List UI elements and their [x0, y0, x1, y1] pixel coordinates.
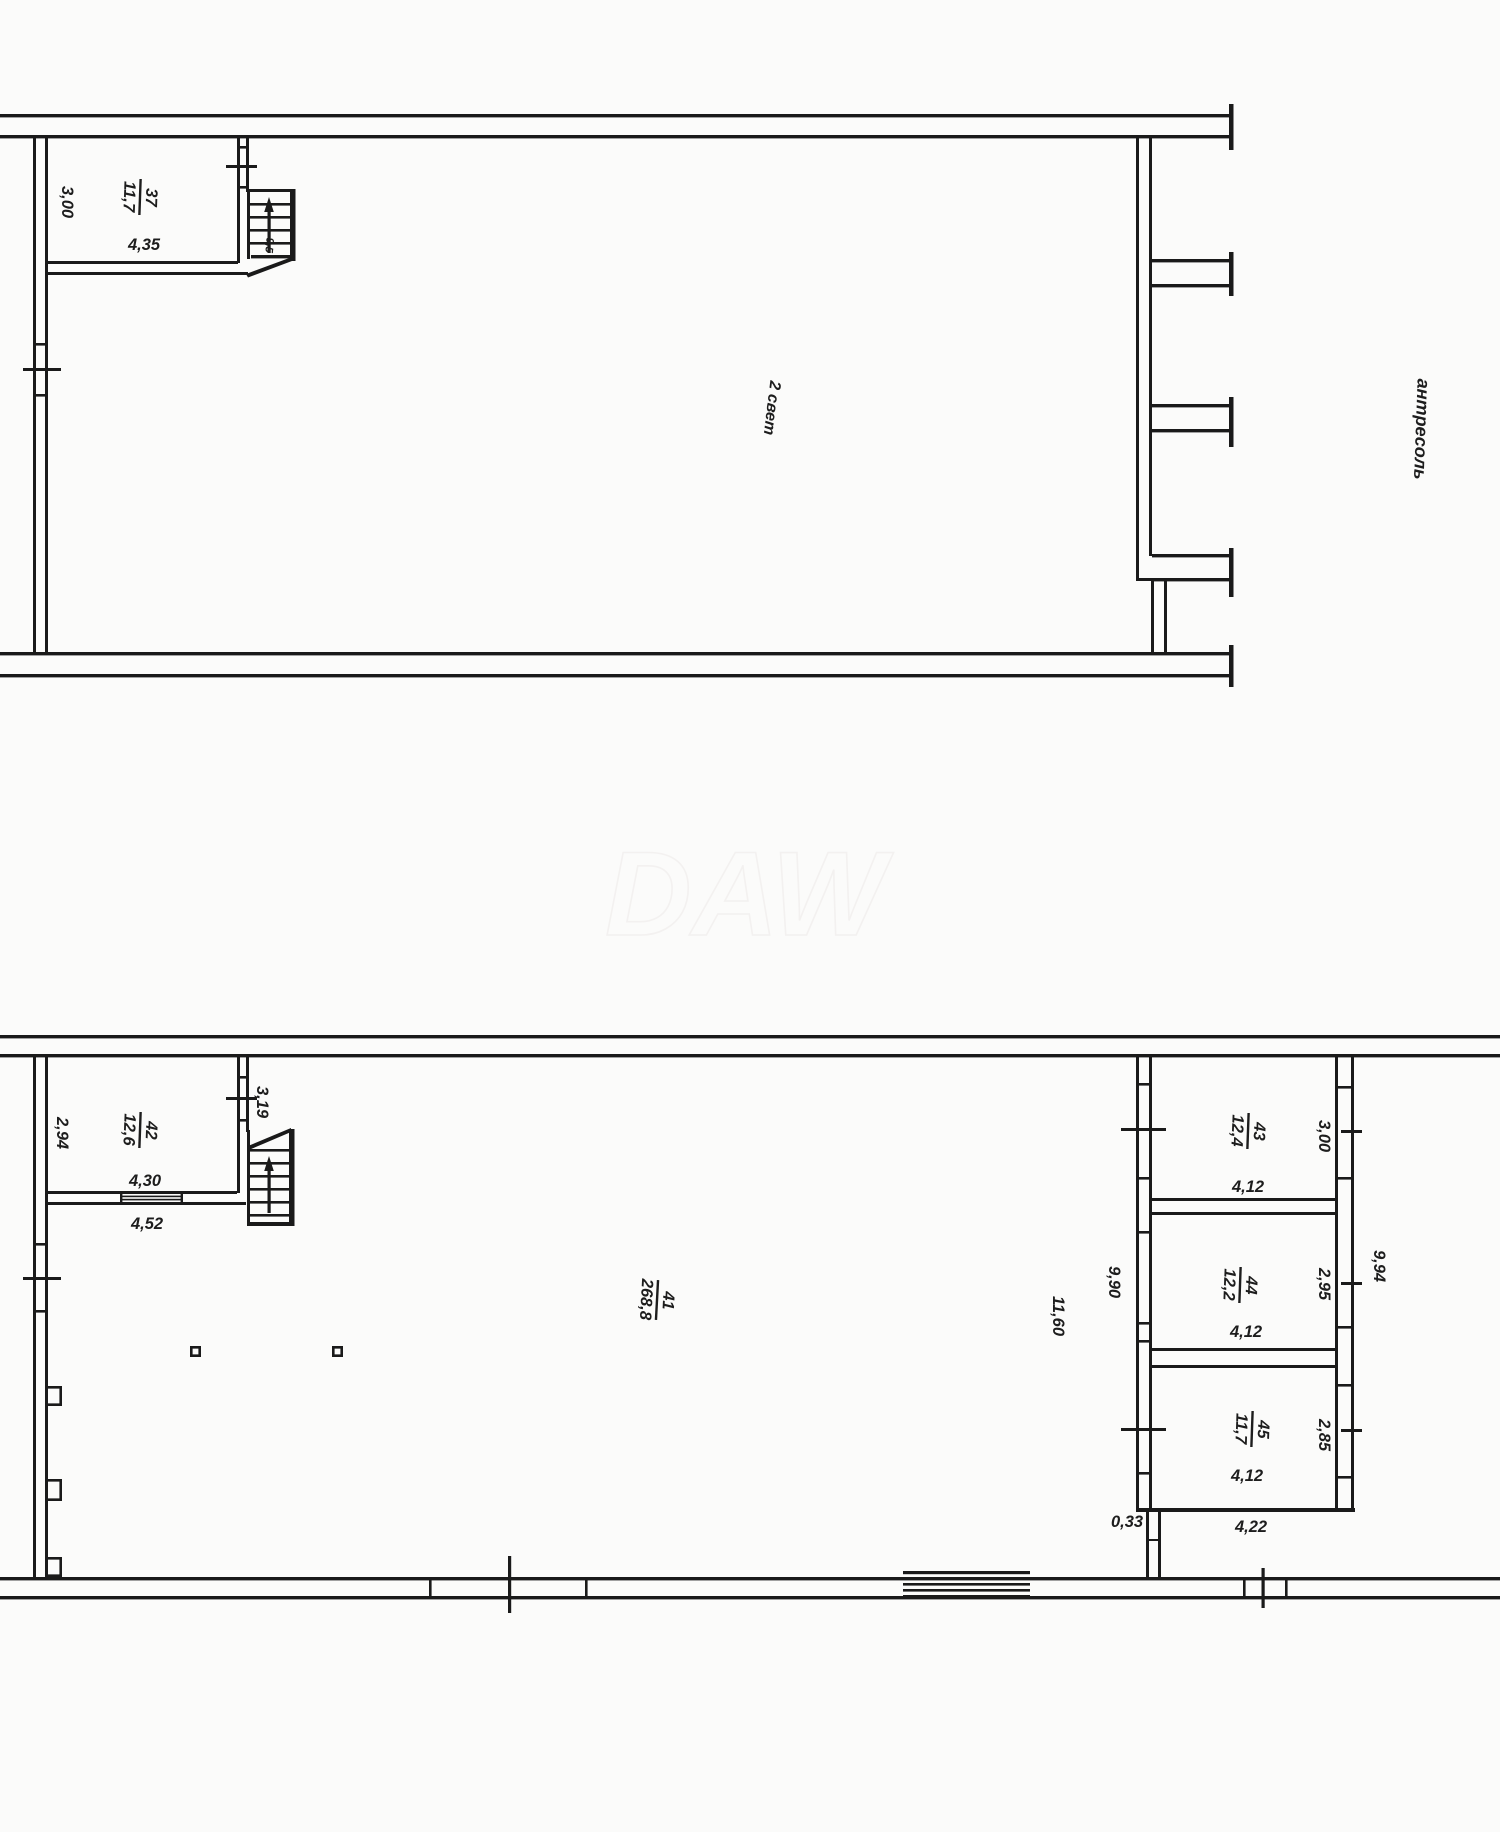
svg-text:9,90: 9,90 [1105, 1266, 1123, 1299]
svg-text:4,12: 4,12 [1231, 1178, 1264, 1196]
svg-text:2,85: 2,85 [1315, 1418, 1333, 1452]
svg-text:41: 41 [659, 1290, 678, 1310]
svg-text:44: 44 [1242, 1275, 1261, 1295]
svg-text:11,7: 11,7 [119, 181, 138, 213]
svg-text:3,19: 3,19 [253, 1086, 271, 1119]
svg-text:4,12: 4,12 [1229, 1323, 1262, 1341]
svg-text:2 свет: 2 свет [760, 379, 784, 436]
svg-text:45: 45 [1254, 1419, 1273, 1440]
svg-text:12,2: 12,2 [1219, 1268, 1238, 1301]
svg-text:9,5: 9,5 [262, 237, 275, 254]
svg-text:43: 43 [1250, 1121, 1269, 1141]
svg-text:37: 37 [142, 188, 161, 208]
svg-text:4,35: 4,35 [127, 236, 161, 254]
svg-text:268,8: 268,8 [636, 1277, 656, 1321]
svg-text:3,00: 3,00 [58, 186, 76, 219]
svg-text:11,60: 11,60 [1049, 1296, 1067, 1337]
svg-text:42: 42 [142, 1120, 161, 1140]
svg-text:9,94: 9,94 [1370, 1250, 1388, 1282]
svg-text:2,94: 2,94 [53, 1116, 71, 1149]
svg-text:антресоль: антресоль [1410, 378, 1434, 480]
svg-text:4,22: 4,22 [1234, 1518, 1267, 1536]
svg-text:4,52: 4,52 [130, 1215, 163, 1233]
svg-text:12,4: 12,4 [1227, 1114, 1246, 1147]
svg-text:2,95: 2,95 [1315, 1267, 1333, 1301]
svg-text:0,33: 0,33 [1111, 1513, 1143, 1531]
svg-text:4,12: 4,12 [1230, 1467, 1263, 1485]
svg-text:4,30: 4,30 [128, 1172, 162, 1190]
svg-text:3,00: 3,00 [1315, 1120, 1333, 1153]
svg-text:11,7: 11,7 [1231, 1413, 1250, 1445]
svg-text:DAW: DAW [605, 827, 894, 961]
svg-text:12,6: 12,6 [119, 1113, 138, 1147]
